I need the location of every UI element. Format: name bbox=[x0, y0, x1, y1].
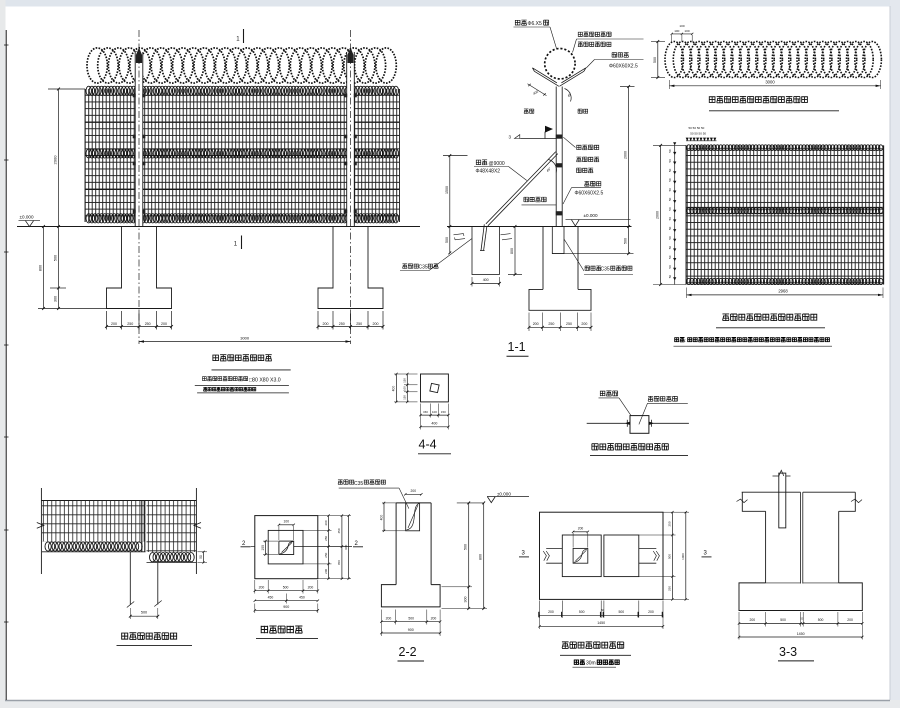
svg-text:□80 X80 X3.0: □80 X80 X3.0 bbox=[249, 378, 281, 384]
svg-text:400: 400 bbox=[392, 386, 396, 392]
svg-text:250: 250 bbox=[668, 586, 672, 591]
svg-text:3000: 3000 bbox=[240, 335, 250, 340]
svg-text:C35: C35 bbox=[419, 265, 428, 271]
svg-text:250: 250 bbox=[339, 322, 345, 326]
svg-text:500: 500 bbox=[141, 611, 147, 615]
svg-text:250: 250 bbox=[566, 322, 572, 326]
svg-text:900: 900 bbox=[283, 605, 289, 609]
svg-text:50: 50 bbox=[668, 188, 672, 192]
svg-text:2000: 2000 bbox=[53, 155, 58, 165]
svg-text:250: 250 bbox=[548, 322, 554, 326]
svg-text:150: 150 bbox=[403, 395, 407, 400]
svg-text:Φ48X48X2: Φ48X48X2 bbox=[476, 168, 501, 174]
svg-text:500: 500 bbox=[464, 544, 468, 550]
svg-text:C35: C35 bbox=[354, 481, 363, 487]
svg-text:500: 500 bbox=[579, 610, 585, 614]
svg-text:50: 50 bbox=[668, 159, 672, 163]
svg-text:150: 150 bbox=[403, 378, 407, 383]
svg-text:50: 50 bbox=[601, 608, 605, 612]
svg-text:900: 900 bbox=[408, 628, 414, 632]
svg-text:300: 300 bbox=[54, 296, 58, 302]
svg-text:C35: C35 bbox=[601, 267, 610, 273]
svg-text:2000: 2000 bbox=[624, 151, 628, 159]
svg-text:150: 150 bbox=[441, 410, 446, 414]
svg-text:900: 900 bbox=[344, 544, 348, 549]
svg-text:50: 50 bbox=[199, 555, 203, 559]
svg-text:250: 250 bbox=[324, 536, 328, 541]
svg-text:@9000: @9000 bbox=[489, 161, 505, 167]
svg-text:500: 500 bbox=[445, 237, 449, 243]
svg-text:50: 50 bbox=[668, 246, 672, 250]
svg-text:200: 200 bbox=[749, 618, 755, 622]
svg-text:Φ60X60X2.5: Φ60X60X2.5 bbox=[609, 63, 638, 69]
svg-text:1000: 1000 bbox=[681, 553, 685, 560]
svg-text:50: 50 bbox=[668, 149, 672, 153]
svg-text:50: 50 bbox=[800, 616, 804, 620]
svg-text:100: 100 bbox=[674, 29, 679, 33]
svg-text:30m: 30m bbox=[586, 661, 596, 667]
svg-text:100: 100 bbox=[432, 410, 437, 414]
svg-text:200: 200 bbox=[373, 322, 379, 326]
svg-text:50: 50 bbox=[668, 265, 672, 269]
svg-text:400: 400 bbox=[379, 515, 383, 521]
svg-text:50: 50 bbox=[668, 275, 672, 279]
svg-text:800: 800 bbox=[479, 554, 483, 560]
svg-text:3-3: 3-3 bbox=[779, 645, 797, 659]
svg-text:150: 150 bbox=[423, 410, 428, 414]
svg-text:200: 200 bbox=[847, 618, 853, 622]
svg-text:500: 500 bbox=[408, 617, 414, 621]
svg-text:500: 500 bbox=[618, 610, 624, 614]
svg-text:50: 50 bbox=[668, 226, 672, 230]
svg-text:800: 800 bbox=[39, 265, 43, 271]
svg-text:1450: 1450 bbox=[597, 621, 605, 625]
svg-text:50: 50 bbox=[668, 168, 672, 172]
svg-text:±0.000: ±0.000 bbox=[20, 215, 34, 220]
svg-text:100: 100 bbox=[284, 520, 290, 524]
svg-text:3000: 3000 bbox=[765, 80, 775, 85]
svg-text:450: 450 bbox=[299, 596, 305, 600]
svg-text:500: 500 bbox=[54, 255, 58, 261]
svg-text:200: 200 bbox=[648, 610, 654, 614]
svg-text:500: 500 bbox=[653, 57, 657, 63]
svg-text:50: 50 bbox=[668, 255, 672, 259]
svg-text:200: 200 bbox=[386, 617, 392, 621]
svg-text:200: 200 bbox=[431, 617, 437, 621]
svg-text:400: 400 bbox=[483, 278, 489, 282]
svg-text:1-1: 1-1 bbox=[508, 340, 526, 354]
svg-text:1450: 1450 bbox=[797, 632, 805, 636]
svg-text:250: 250 bbox=[324, 552, 328, 557]
svg-text:2000: 2000 bbox=[656, 211, 660, 219]
svg-text:250: 250 bbox=[356, 322, 362, 326]
svg-text:100: 100 bbox=[261, 545, 265, 551]
svg-text:200: 200 bbox=[308, 586, 314, 590]
svg-text:250: 250 bbox=[668, 521, 672, 526]
svg-text:500: 500 bbox=[780, 618, 786, 622]
svg-text:500: 500 bbox=[283, 586, 289, 590]
svg-text:100: 100 bbox=[403, 386, 407, 391]
svg-text:50: 50 bbox=[668, 178, 672, 182]
svg-text:2968: 2968 bbox=[778, 289, 788, 294]
svg-text:200: 200 bbox=[161, 322, 167, 326]
svg-text:200: 200 bbox=[324, 520, 328, 525]
svg-text::: : bbox=[685, 338, 686, 343]
svg-text:400: 400 bbox=[431, 422, 437, 426]
svg-text:200: 200 bbox=[581, 322, 587, 326]
svg-text:2-2: 2-2 bbox=[399, 645, 417, 659]
svg-text:50: 50 bbox=[668, 207, 672, 211]
svg-text:500: 500 bbox=[668, 554, 672, 559]
svg-text:50 50 50 50: 50 50 50 50 bbox=[690, 131, 706, 135]
svg-text:50 50 50 50: 50 50 50 50 bbox=[689, 126, 705, 130]
svg-text:200: 200 bbox=[411, 489, 417, 493]
svg-text:±0.000: ±0.000 bbox=[584, 213, 598, 218]
svg-text:50: 50 bbox=[668, 197, 672, 201]
svg-text:50: 50 bbox=[668, 217, 672, 221]
svg-text:200: 200 bbox=[259, 586, 265, 590]
svg-text:200: 200 bbox=[533, 322, 539, 326]
svg-text:250: 250 bbox=[145, 322, 151, 326]
svg-text:200: 200 bbox=[548, 610, 554, 614]
svg-text:450: 450 bbox=[268, 596, 274, 600]
svg-text:200: 200 bbox=[324, 568, 328, 573]
svg-text:300: 300 bbox=[464, 597, 468, 603]
svg-text:250: 250 bbox=[127, 322, 133, 326]
svg-text:100: 100 bbox=[679, 24, 684, 28]
svg-text:Φ60X60X2.5: Φ60X60X2.5 bbox=[575, 190, 604, 196]
svg-text:500: 500 bbox=[818, 618, 824, 622]
svg-text:±0.000: ±0.000 bbox=[497, 491, 511, 496]
svg-text:200: 200 bbox=[323, 322, 329, 326]
svg-text:800: 800 bbox=[510, 248, 514, 254]
svg-text:200: 200 bbox=[578, 527, 584, 531]
svg-text:50: 50 bbox=[668, 236, 672, 240]
svg-text:100: 100 bbox=[684, 29, 689, 33]
svg-text:450: 450 bbox=[337, 560, 341, 565]
svg-text:Φ6.X5: Φ6.X5 bbox=[528, 21, 542, 27]
svg-text:200: 200 bbox=[111, 322, 117, 326]
svg-text:450: 450 bbox=[337, 528, 341, 533]
svg-text:4-4: 4-4 bbox=[419, 438, 437, 452]
svg-text:500: 500 bbox=[624, 238, 628, 244]
svg-text:1500: 1500 bbox=[445, 186, 449, 194]
